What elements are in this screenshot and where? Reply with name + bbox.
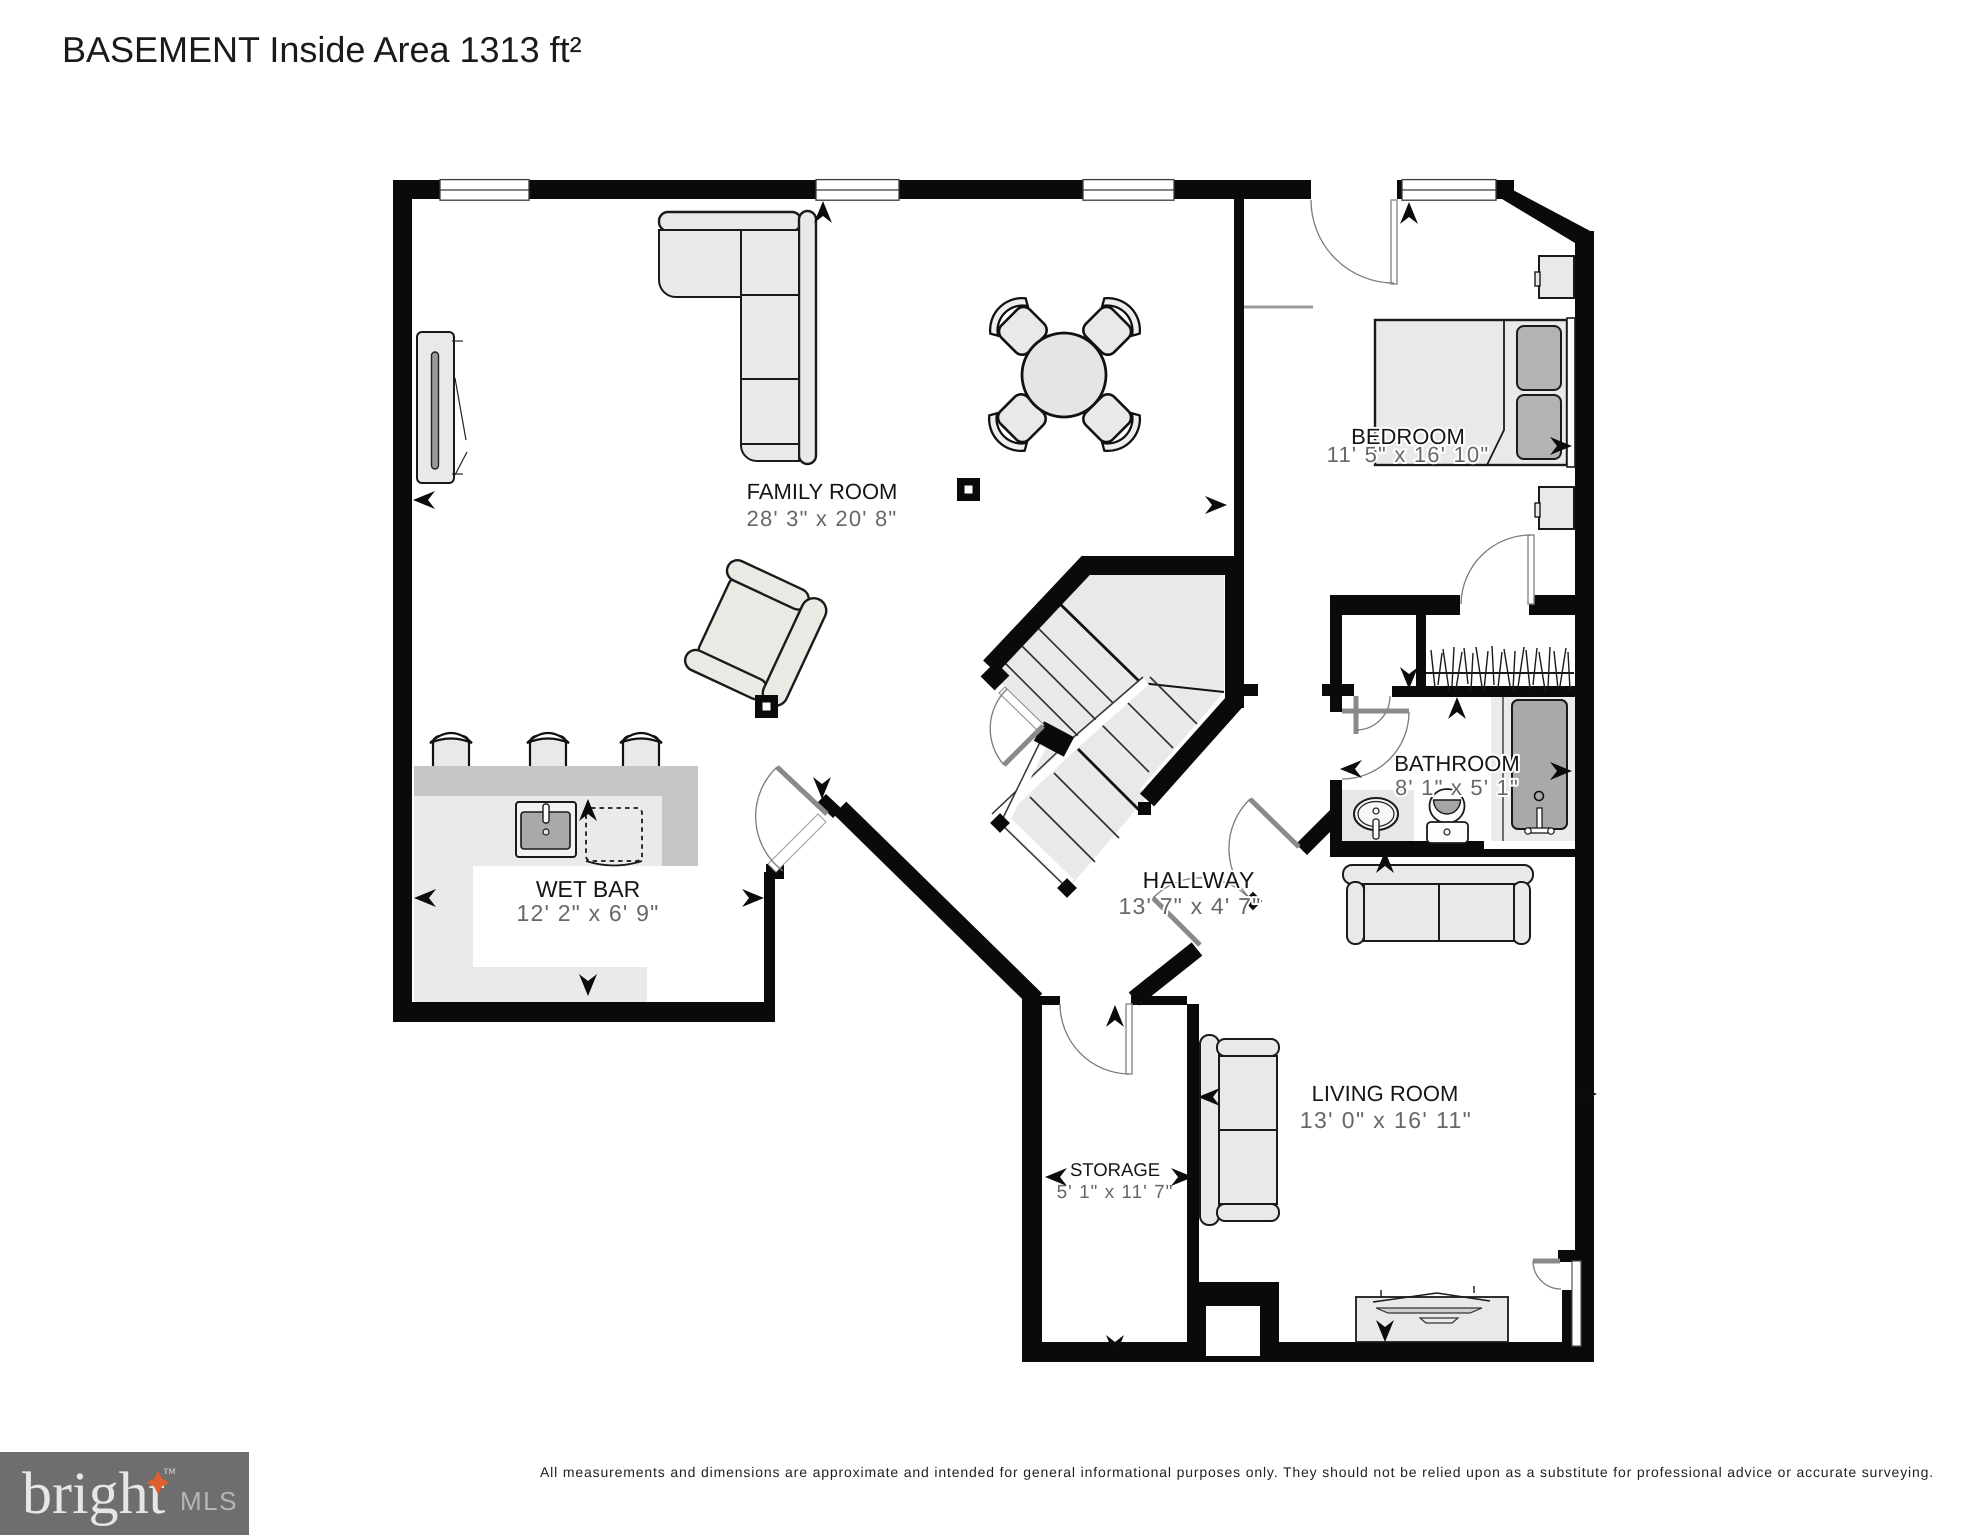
svg-text:HALLWAY: HALLWAY [1143,867,1256,893]
svg-text:5' 1" x 11' 7": 5' 1" x 11' 7" [1057,1182,1174,1203]
svg-text:™: ™ [163,1465,176,1480]
svg-text:LIVING ROOM: LIVING ROOM [1312,1081,1459,1106]
svg-text:28' 3" x 20' 8": 28' 3" x 20' 8" [747,506,898,531]
svg-text:13' 0" x 16' 11": 13' 0" x 16' 11" [1300,1107,1472,1133]
svg-text:BATHROOM: BATHROOM [1394,751,1519,776]
svg-text:11' 5" x 16' 10": 11' 5" x 16' 10" [1327,442,1490,467]
svg-text:13' 7" x 4' 7": 13' 7" x 4' 7" [1119,893,1262,919]
svg-text:WET BAR: WET BAR [536,876,640,902]
svg-text:MLS: MLS [180,1486,238,1516]
svg-text:FAMILY ROOM: FAMILY ROOM [747,479,898,504]
svg-text:bright: bright [22,1460,166,1526]
svg-text:All measurements and dimension: All measurements and dimensions are appr… [540,1464,1934,1480]
svg-text:12' 2" x 6' 9": 12' 2" x 6' 9" [517,900,660,926]
svg-text:BASEMENT Inside Area 1313 ft²: BASEMENT Inside Area 1313 ft² [62,29,582,70]
svg-text:STORAGE: STORAGE [1070,1159,1160,1180]
svg-text:8' 1" x 5' 1": 8' 1" x 5' 1" [1395,775,1519,800]
